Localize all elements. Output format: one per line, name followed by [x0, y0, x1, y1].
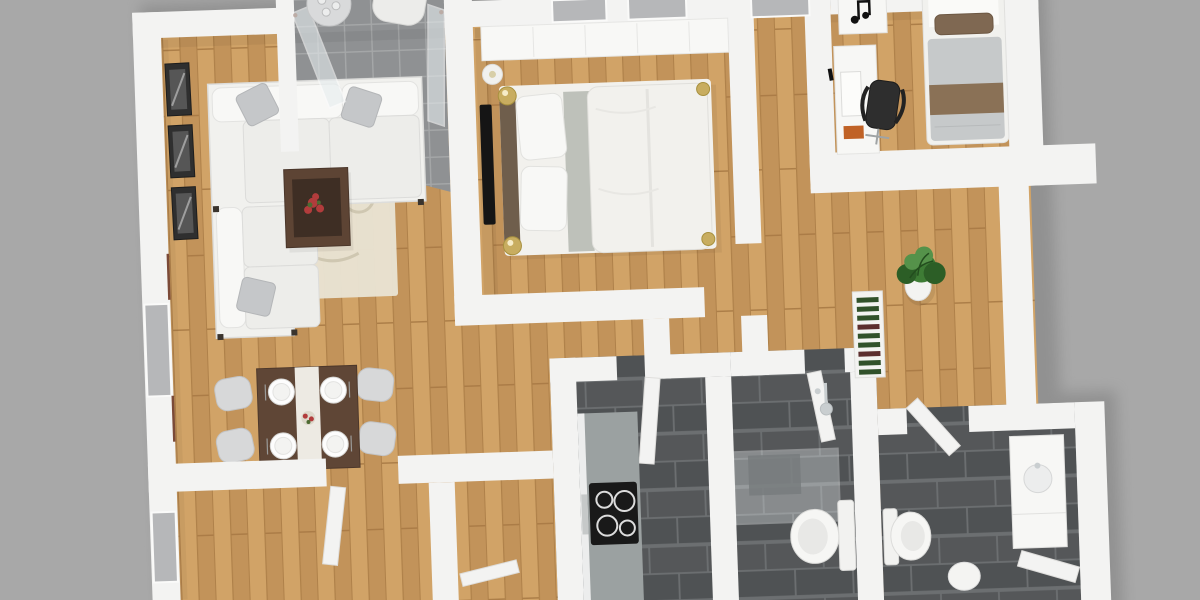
coffee-table: [284, 167, 354, 252]
left-window: [152, 512, 178, 583]
bidet: [948, 562, 981, 591]
apartment-entry-door: [751, 0, 810, 17]
floor-plan-svg: [0, 0, 1200, 600]
left-window: [144, 304, 171, 397]
dining-table: [257, 365, 360, 470]
monitor: [841, 72, 863, 117]
vanity: [1009, 435, 1067, 549]
kitchen: [577, 412, 645, 600]
wine-rack: [852, 291, 885, 378]
brown-stripe: [929, 83, 1004, 116]
brown-pillow: [935, 13, 994, 35]
top-window: [552, 0, 607, 22]
double-bed: [498, 79, 722, 261]
orange-book: [843, 125, 863, 139]
apartment: [130, 0, 1111, 600]
top-window: [628, 0, 687, 20]
duvet: [587, 83, 713, 253]
floor-plan-render: [0, 0, 1200, 600]
cooktop: [589, 482, 639, 546]
single-bed: [922, 0, 1009, 145]
nightstand: [838, 0, 887, 34]
